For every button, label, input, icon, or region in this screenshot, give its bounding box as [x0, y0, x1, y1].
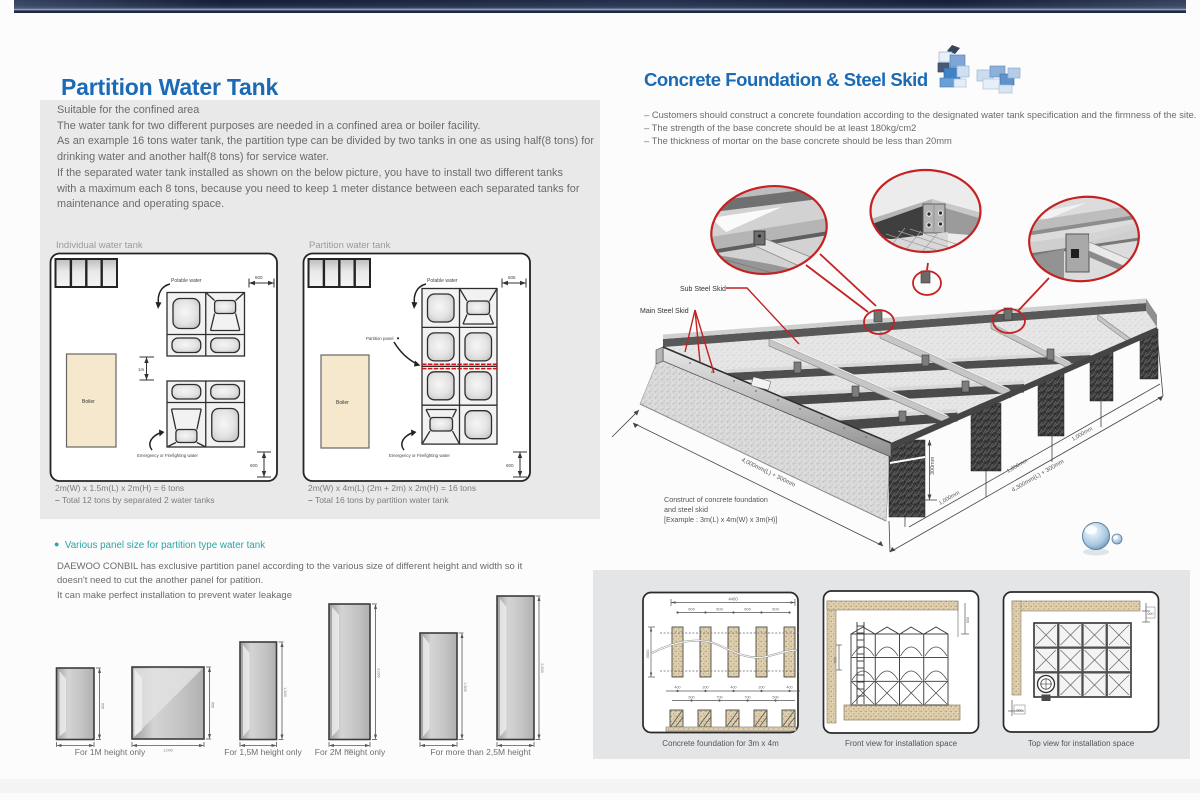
svg-text:1m: 1m: [138, 367, 145, 372]
svg-text:900: 900: [716, 607, 723, 612]
svg-text:400: 400: [786, 686, 792, 690]
svg-text:2,500: 2,500: [540, 663, 544, 673]
svg-text:Construct of concrete foundati: Construct of concrete foundation: [664, 495, 768, 504]
svg-text:3000: 3000: [645, 649, 650, 659]
svg-text:Potable water: Potable water: [427, 278, 458, 284]
svg-text:Main Steel Skid: Main Steel Skid: [640, 308, 689, 315]
svg-text:Boiler: Boiler: [336, 400, 349, 406]
svg-text:700: 700: [744, 696, 750, 700]
svg-text:600: 600: [1148, 612, 1154, 616]
svg-text:500: 500: [772, 696, 778, 700]
svg-text:995: 995: [211, 702, 215, 708]
svg-text:1,500: 1,500: [283, 687, 287, 697]
svg-text:600: 600: [1017, 709, 1023, 713]
svg-text:and steel skid: and steel skid: [664, 505, 708, 514]
svg-text:Top view for installation spac: Top view for installation space: [1028, 739, 1135, 748]
svg-text:600: 600: [255, 275, 263, 280]
svg-text:Potable water: Potable water: [171, 278, 202, 284]
svg-text:Emergency or Firefighting wate: Emergency or Firefighting water: [137, 453, 198, 458]
svg-text:900: 900: [744, 607, 751, 612]
svg-text:605: 605: [508, 275, 516, 280]
svg-text:Sub Steel Skid: Sub Steel Skid: [680, 286, 726, 293]
svg-text:500: 500: [688, 696, 694, 700]
svg-text:1,500: 1,500: [463, 682, 467, 692]
svg-text:300mm: 300mm: [930, 456, 936, 475]
svg-text:700: 700: [716, 696, 722, 700]
svg-text:Partition panel: Partition panel: [366, 336, 394, 341]
svg-text:900: 900: [772, 607, 779, 612]
svg-text:600: 600: [966, 617, 970, 623]
svg-text:200: 200: [702, 686, 708, 690]
svg-text:4400: 4400: [728, 597, 738, 602]
svg-text:Front view for installation sp: Front view for installation space: [845, 739, 958, 748]
svg-text:1,000mm: 1,000mm: [1006, 458, 1029, 475]
svg-text:200: 200: [758, 686, 764, 690]
svg-text:400: 400: [674, 686, 680, 690]
svg-text:500: 500: [834, 657, 838, 663]
svg-text:400: 400: [730, 686, 736, 690]
svg-text:995: 995: [101, 703, 105, 709]
svg-text:600: 600: [506, 463, 514, 468]
svg-text:[Example : 3m(L) x 4m(W) x 3m(: [Example : 3m(L) x 4m(W) x 3m(H)]: [664, 515, 777, 524]
svg-text:600: 600: [250, 463, 258, 468]
svg-text:Boiler: Boiler: [82, 399, 95, 405]
svg-text:Concrete foundation for 3m x 4: Concrete foundation for 3m x 4m: [662, 739, 779, 748]
svg-text:Emergency or Firefighting wate: Emergency or Firefighting water: [389, 453, 450, 458]
svg-text:900: 900: [688, 607, 695, 612]
svg-text:2,000: 2,000: [377, 668, 381, 678]
